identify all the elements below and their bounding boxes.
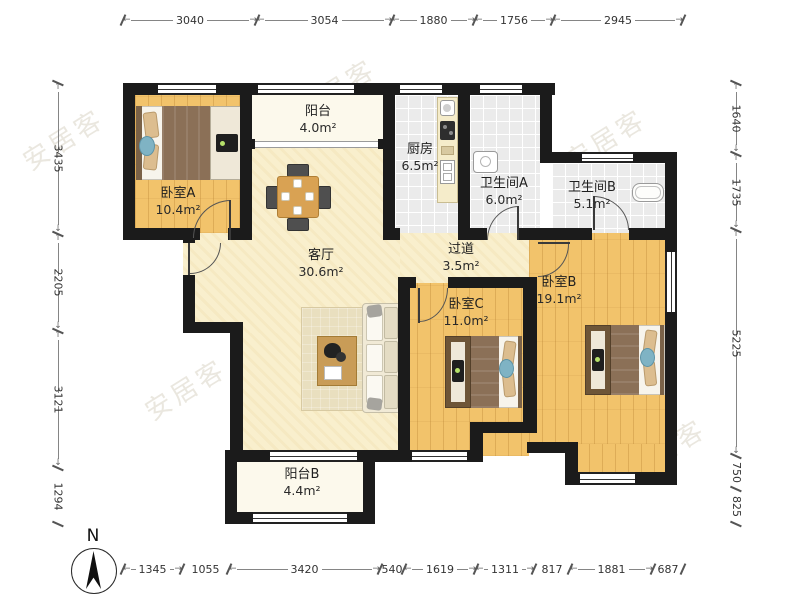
sofa-seat <box>366 344 383 372</box>
wall-segment <box>635 472 677 485</box>
plate <box>293 206 302 215</box>
door-leaf <box>538 242 570 244</box>
room-name: 卧室C <box>432 297 500 313</box>
dim-value: 1345 <box>136 563 170 576</box>
sofa-back-cushion <box>384 341 398 373</box>
room-label-balcony-b: 阳台B 4.4m² <box>270 467 334 498</box>
north-label: N <box>82 526 104 546</box>
room-name: 阳台 <box>280 104 356 120</box>
room-area: 3.5m² <box>430 258 492 273</box>
room-name: 卫生间A <box>470 176 538 192</box>
dim-segment: ←3420→ <box>229 561 380 577</box>
dim-value: 1881 <box>595 563 629 576</box>
window <box>480 83 522 95</box>
burner <box>449 131 453 135</box>
room-area: 11.0m² <box>432 313 500 328</box>
dim-value: 1880 <box>417 14 451 27</box>
dim-segment: 540 <box>380 561 404 577</box>
bedroom-b-floor <box>576 444 671 474</box>
dim-value: 1619 <box>423 563 457 576</box>
wall-segment <box>540 152 582 163</box>
watermark-text: 安居客 <box>137 349 233 428</box>
wall-segment <box>357 450 398 462</box>
window <box>580 472 635 485</box>
sofa-pillow <box>366 397 382 411</box>
wall-segment <box>519 228 592 240</box>
window <box>400 83 442 95</box>
room-area: 6.0m² <box>470 192 538 207</box>
dim-value: 5225 <box>730 326 743 360</box>
wall-segment <box>225 512 253 524</box>
dim-value: 3121 <box>52 383 65 417</box>
dim-segment: 687 <box>653 561 683 577</box>
dim-value: 750 <box>730 459 743 486</box>
wall-segment <box>398 277 416 288</box>
round-cushion <box>640 348 655 367</box>
wall-segment <box>448 277 523 288</box>
dim-value: 1294 <box>52 479 65 513</box>
dim-segment: ↑5225↓ <box>728 230 744 456</box>
dim-segment: ←1619→ <box>404 561 476 577</box>
window <box>253 512 347 524</box>
dim-segment: ↑2205↓ <box>50 234 66 331</box>
bed-headboard <box>660 325 664 395</box>
sink-drain <box>443 104 451 112</box>
room-label-hallway: 过道 3.5m² <box>430 242 492 273</box>
round-cushion <box>139 136 155 156</box>
pillow <box>142 111 159 139</box>
sofa-back-cushion <box>384 375 398 409</box>
dim-segment: 1294 <box>50 468 66 524</box>
wall-segment <box>383 228 400 240</box>
room-name: 客厅 <box>288 248 354 264</box>
room-name: 阳台B <box>270 467 334 483</box>
room-area: 5.1m² <box>558 196 626 211</box>
wall-segment <box>665 152 677 252</box>
room-name: 厨房 <box>385 142 455 158</box>
wall-segment <box>347 512 375 524</box>
wall-segment <box>665 312 677 485</box>
dim-segment: ↑3121↓ <box>50 331 66 468</box>
room-label-bedroom-a: 卧室A 10.4m² <box>133 186 223 217</box>
wall-segment <box>483 422 537 433</box>
window <box>258 83 354 95</box>
washer-drum <box>480 156 491 167</box>
room-area: 19.1m² <box>525 291 593 306</box>
dim-segment: ←2945→ <box>553 12 683 28</box>
tv-light <box>455 368 460 373</box>
window <box>582 152 633 163</box>
window <box>158 83 216 95</box>
bed-duvet <box>162 106 210 180</box>
dim-value: 3054 <box>308 14 342 27</box>
wall-segment <box>240 83 252 240</box>
wall-segment <box>458 228 487 240</box>
dim-value: 1311 <box>488 563 522 576</box>
dim-segment: ↑1640↓ <box>728 83 744 154</box>
bed-headboard <box>518 336 522 408</box>
bed-duvet <box>471 336 499 408</box>
plate <box>281 192 290 201</box>
dim-value: 817 <box>539 563 566 576</box>
bathtub-inner <box>635 186 661 199</box>
round-cushion <box>499 359 514 378</box>
dim-segment: 817 <box>534 561 570 577</box>
window <box>412 450 467 462</box>
room-area: 4.4m² <box>270 483 334 498</box>
wall-segment <box>230 322 243 450</box>
bed-duvet <box>611 325 639 395</box>
plate <box>305 192 314 201</box>
room-label-living-room: 客厅 30.6m² <box>288 248 354 279</box>
wall-segment <box>565 442 578 474</box>
room-name: 卧室A <box>133 186 223 202</box>
room-name: 卫生间B <box>558 180 626 196</box>
dim-value: 1640 <box>730 102 743 136</box>
dim-segment: ←1880→ <box>392 12 475 28</box>
dim-segment: ↑3435↓ <box>50 83 66 234</box>
dining-chair <box>287 218 309 231</box>
room-area: 4.0m² <box>280 120 356 135</box>
room-label-bathroom-a: 卫生间A 6.0m² <box>470 176 538 207</box>
floor-plan: 安居客 安居客 安居客 安居客 安居客 安居客 <box>0 0 800 600</box>
stove <box>440 121 455 140</box>
plate <box>293 179 302 188</box>
basin <box>443 173 452 181</box>
wall-segment <box>467 450 483 462</box>
dining-chair <box>318 186 331 209</box>
room-label-bathroom-b: 卫生间B 5.1m² <box>558 180 626 211</box>
dim-segment: ←1756→ <box>475 12 553 28</box>
magazine <box>324 366 342 380</box>
dim-value: 2205 <box>52 266 65 300</box>
window <box>665 252 677 312</box>
sofa-pillow <box>366 304 383 318</box>
wall-segment <box>183 322 230 333</box>
dim-value: 3435 <box>52 142 65 176</box>
window <box>270 450 357 462</box>
dim-value: 1055 <box>189 563 223 576</box>
door-leaf <box>229 200 231 240</box>
dim-value: 3040 <box>173 14 207 27</box>
balcony-rail <box>252 141 383 148</box>
speaker <box>336 352 346 362</box>
tv-light <box>220 141 225 146</box>
room-label-bedroom-c: 卧室C 11.0m² <box>432 297 500 328</box>
wall-segment <box>363 462 375 512</box>
wall-segment <box>527 442 567 453</box>
room-area: 6.5m² <box>385 158 455 173</box>
tv-light <box>595 357 600 362</box>
door-leaf <box>188 243 190 275</box>
door-leaf <box>418 288 420 323</box>
dim-value: 687 <box>655 563 682 576</box>
dim-value: 825 <box>730 493 743 520</box>
dim-segment: ←1311→ <box>476 561 534 577</box>
room-label-kitchen: 厨房 6.5m² <box>385 142 455 173</box>
dim-segment: ←3054→ <box>257 12 392 28</box>
room-label-balcony-a: 阳台 4.0m² <box>280 104 356 135</box>
dim-segment: 1055 <box>182 561 229 577</box>
door-leaf <box>517 206 519 240</box>
rail-cap <box>247 139 255 149</box>
wall-segment <box>458 95 470 228</box>
dim-segment: 825 <box>728 489 744 524</box>
room-area: 30.6m² <box>288 264 354 279</box>
dim-value: 1735 <box>730 175 743 209</box>
room-name: 卧室B <box>525 275 593 291</box>
dim-segment: ↑1735↓ <box>728 154 744 230</box>
wall-segment <box>398 277 410 462</box>
dim-value: 3420 <box>288 563 322 576</box>
room-label-bedroom-b: 卧室B 19.1m² <box>525 275 593 306</box>
wall-segment <box>123 228 200 240</box>
wall-segment <box>565 472 580 485</box>
dim-segment: 750 <box>728 456 744 489</box>
dim-value: 1756 <box>497 14 531 27</box>
sofa-back-cushion <box>384 307 398 339</box>
dim-segment: ←1881→ <box>570 561 653 577</box>
room-name: 过道 <box>430 242 492 258</box>
burner <box>443 125 447 129</box>
dim-value: 2945 <box>601 14 635 27</box>
dim-segment: ←3040→ <box>123 12 257 28</box>
dim-segment: ←1345→ <box>123 561 182 577</box>
room-area: 10.4m² <box>133 202 223 217</box>
